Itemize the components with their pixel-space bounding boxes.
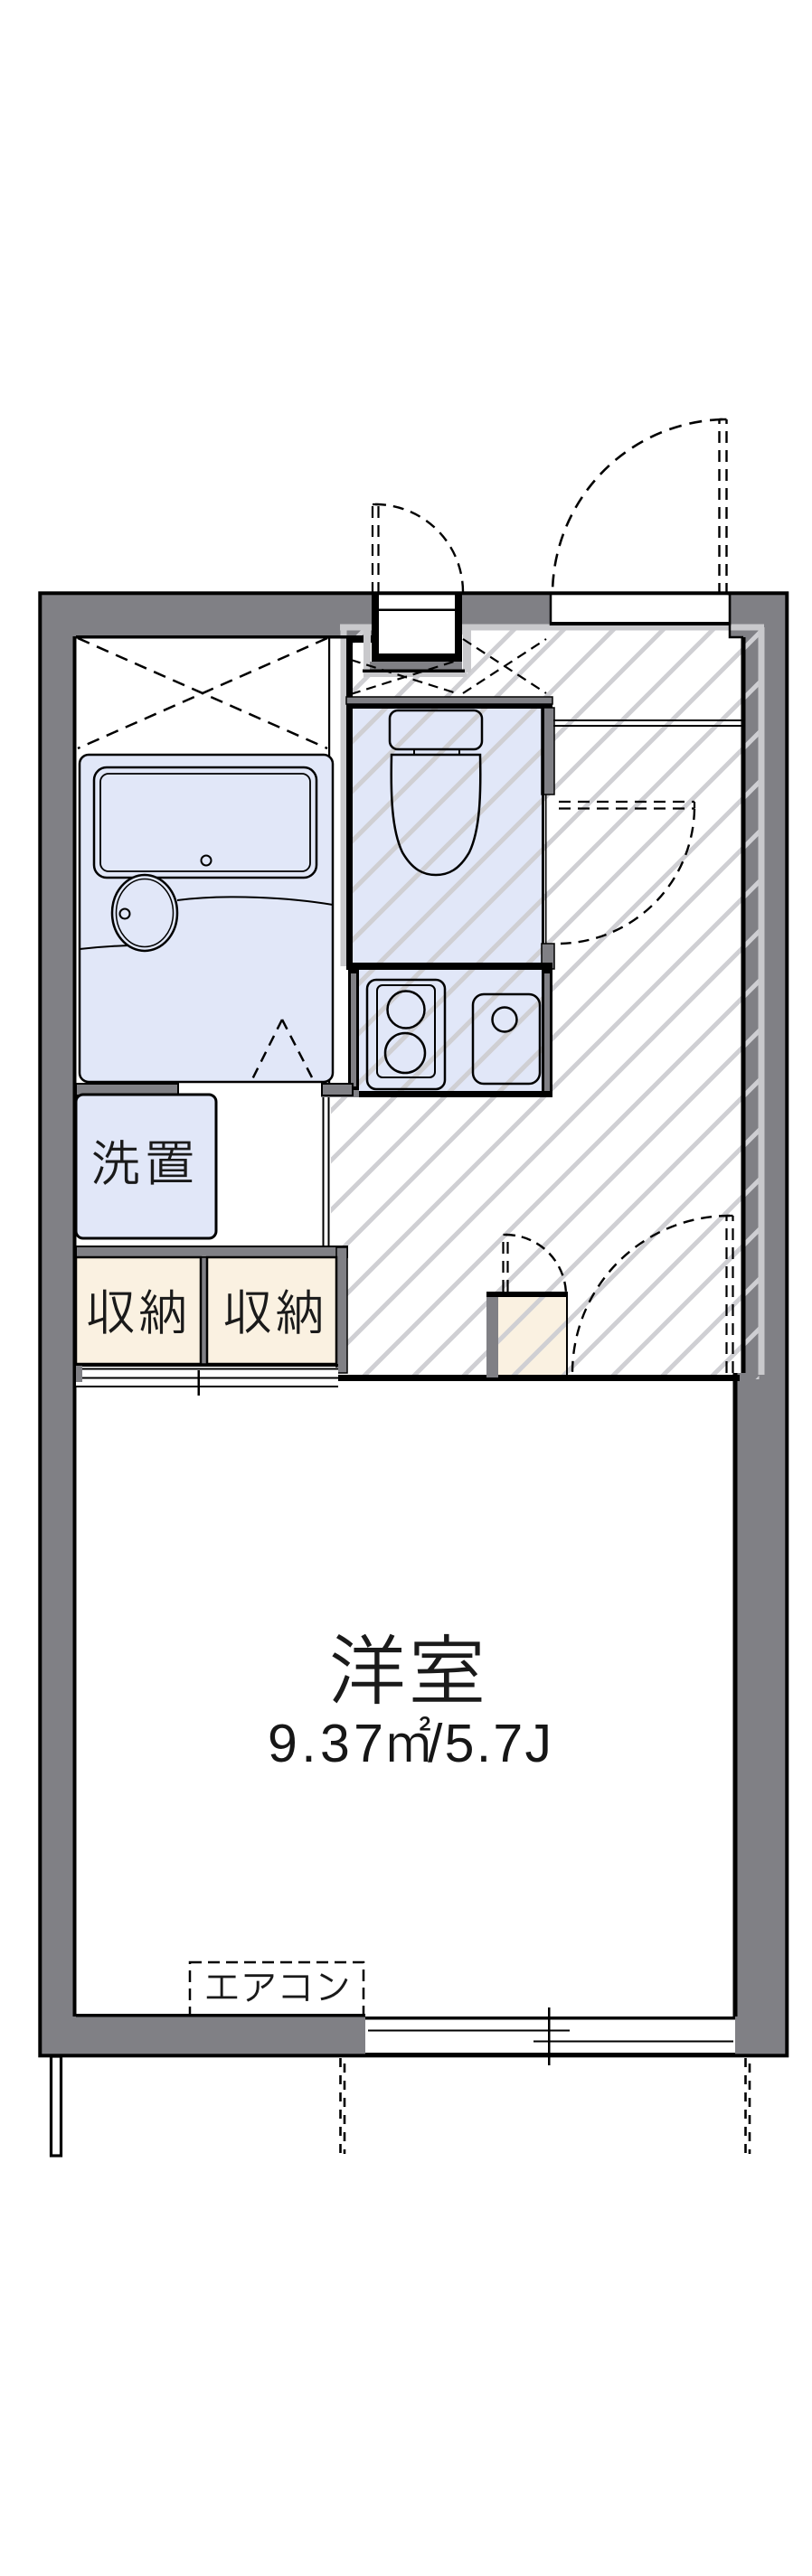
svg-text:/5.7J: /5.7J [428,1714,552,1773]
svg-text:9.37: 9.37 [268,1714,383,1773]
